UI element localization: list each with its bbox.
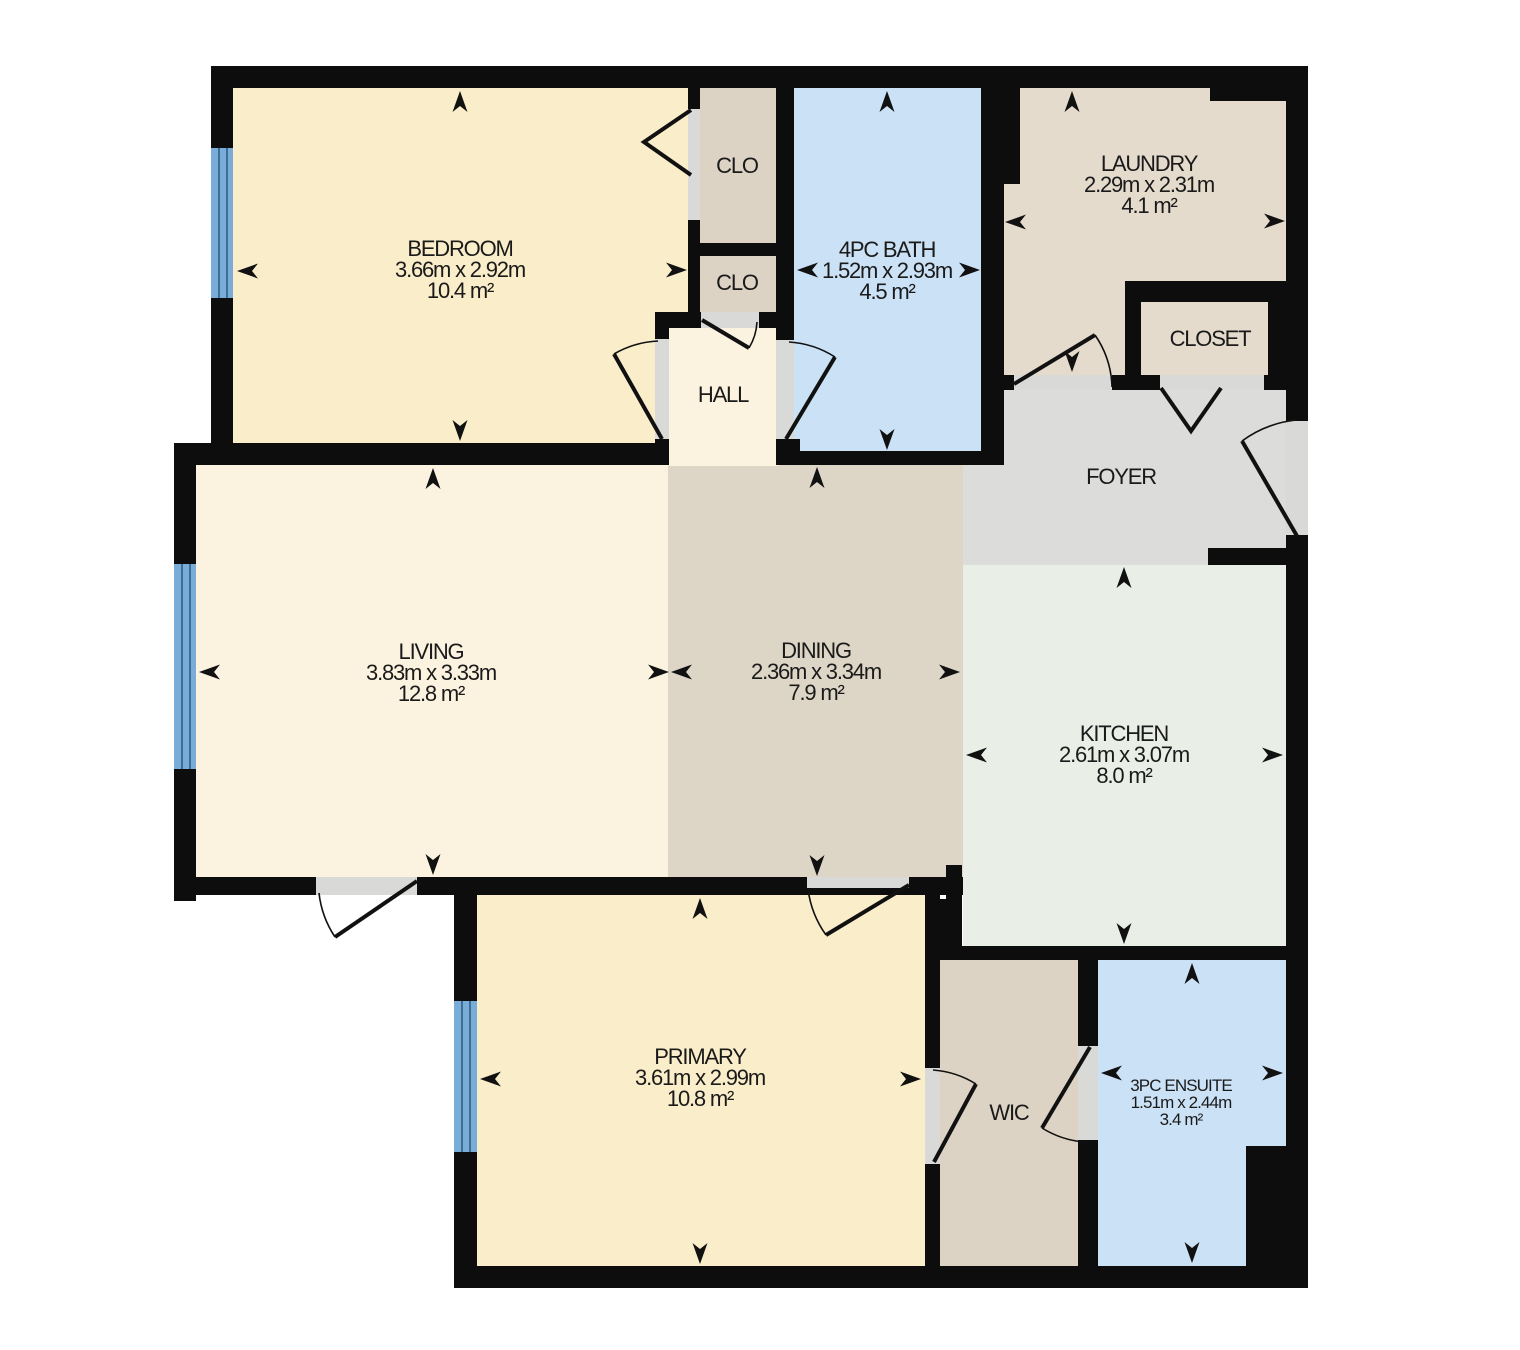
svg-text:HALL: HALL	[698, 382, 749, 407]
svg-text:CLOSET: CLOSET	[1170, 326, 1252, 351]
svg-text:CLO: CLO	[716, 270, 759, 295]
svg-text:10.8 m²: 10.8 m²	[667, 1086, 734, 1111]
svg-text:7.9 m²: 7.9 m²	[788, 680, 844, 705]
svg-text:4.1 m²: 4.1 m²	[1121, 193, 1177, 218]
svg-text:3.4 m²: 3.4 m²	[1160, 1110, 1204, 1129]
svg-text:12.8 m²: 12.8 m²	[398, 681, 465, 706]
svg-text:CLO: CLO	[716, 153, 759, 178]
svg-text:WIC: WIC	[989, 1100, 1029, 1125]
svg-text:10.4 m²: 10.4 m²	[427, 278, 494, 303]
svg-text:8.0 m²: 8.0 m²	[1096, 763, 1152, 788]
svg-text:4.5 m²: 4.5 m²	[859, 279, 915, 304]
svg-text:FOYER: FOYER	[1086, 464, 1156, 489]
